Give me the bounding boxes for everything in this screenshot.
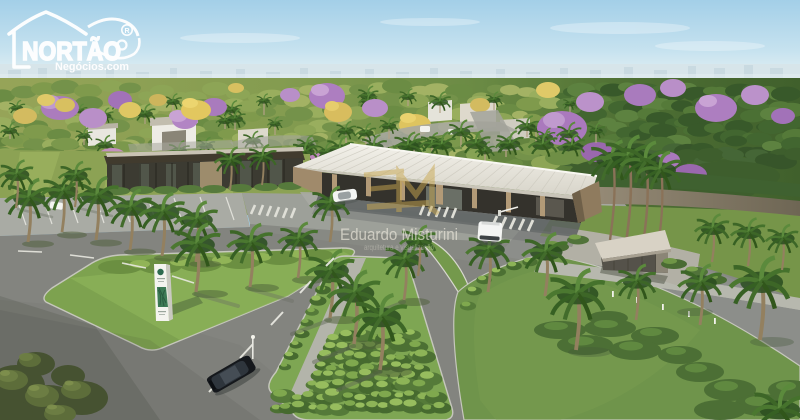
svg-text:Eduardo Misturini: Eduardo Misturini bbox=[340, 225, 458, 244]
svg-text:arquitetura e visualização: arquitetura e visualização bbox=[364, 243, 434, 252]
svg-text:Negócios.com: Negócios.com bbox=[55, 61, 129, 73]
svg-text:R: R bbox=[124, 28, 129, 35]
